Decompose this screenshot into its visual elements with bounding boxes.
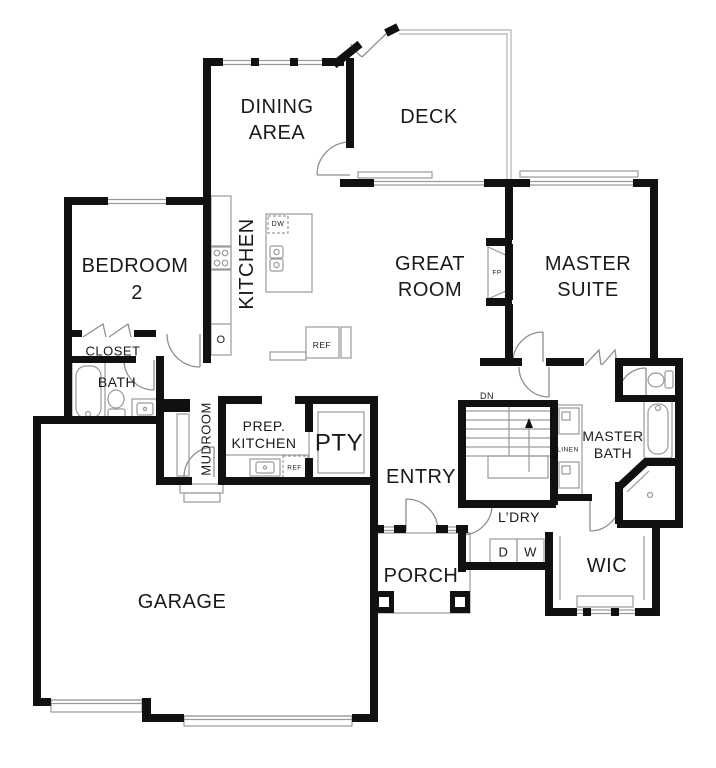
room-label-dining-1: DINING — [241, 96, 314, 118]
labels: DINING AREA DECK BEDROOM 2 KITCHEN GREAT… — [82, 96, 644, 613]
label-oven: O — [216, 334, 225, 346]
walls — [33, 58, 683, 722]
room-label-garage: GARAGE — [138, 591, 227, 613]
room-label-laundry: L’DRY — [498, 509, 540, 525]
room-label-bath: BATH — [98, 374, 136, 390]
deck-outline — [397, 30, 511, 180]
room-label-master-suite-1: MASTER — [545, 253, 631, 275]
stairs — [466, 403, 550, 478]
room-label-prep-kitchen-1: PREP. — [243, 418, 286, 434]
windows — [51, 61, 638, 727]
label-washer: W — [524, 545, 537, 560]
room-label-kitchen: KITCHEN — [236, 218, 258, 309]
label-linen: LINEN — [557, 447, 579, 454]
label-stairs-down: DN — [480, 391, 494, 401]
room-label-wic: WIC — [587, 555, 627, 577]
floorplan-image: DINING AREA DECK BEDROOM 2 KITCHEN GREAT… — [0, 0, 716, 768]
room-label-bedroom2-2: 2 — [131, 282, 143, 304]
room-label-dining-2: AREA — [249, 122, 306, 144]
room-label-bedroom2-1: BEDROOM — [82, 255, 189, 277]
room-label-prep-kitchen-2: KITCHEN — [232, 435, 297, 451]
room-label-closet: CLOSET — [85, 344, 140, 359]
room-label-great-room-2: ROOM — [398, 279, 462, 301]
room-label-master-bath-2: BATH — [594, 445, 632, 461]
room-label-porch: PORCH — [384, 565, 459, 587]
room-label-pantry: PTY — [315, 430, 363, 457]
label-prep-refrigerator: REF — [287, 465, 302, 472]
label-fireplace: FP — [492, 270, 501, 277]
room-label-mudroom: MUDROOM — [199, 402, 214, 476]
label-dryer: D — [499, 545, 509, 560]
floorplan-page: DINING AREA DECK BEDROOM 2 KITCHEN GREAT… — [0, 0, 716, 768]
label-dishwasher: DW — [272, 221, 285, 228]
room-label-master-suite-2: SUITE — [557, 279, 618, 301]
room-label-entry: ENTRY — [386, 466, 456, 488]
bath-fixtures — [72, 362, 158, 422]
room-label-deck: DECK — [400, 106, 458, 128]
label-refrigerator: REF — [313, 340, 332, 350]
room-label-great-room-1: GREAT — [395, 253, 465, 275]
room-label-master-bath-1: MASTER — [582, 428, 643, 444]
